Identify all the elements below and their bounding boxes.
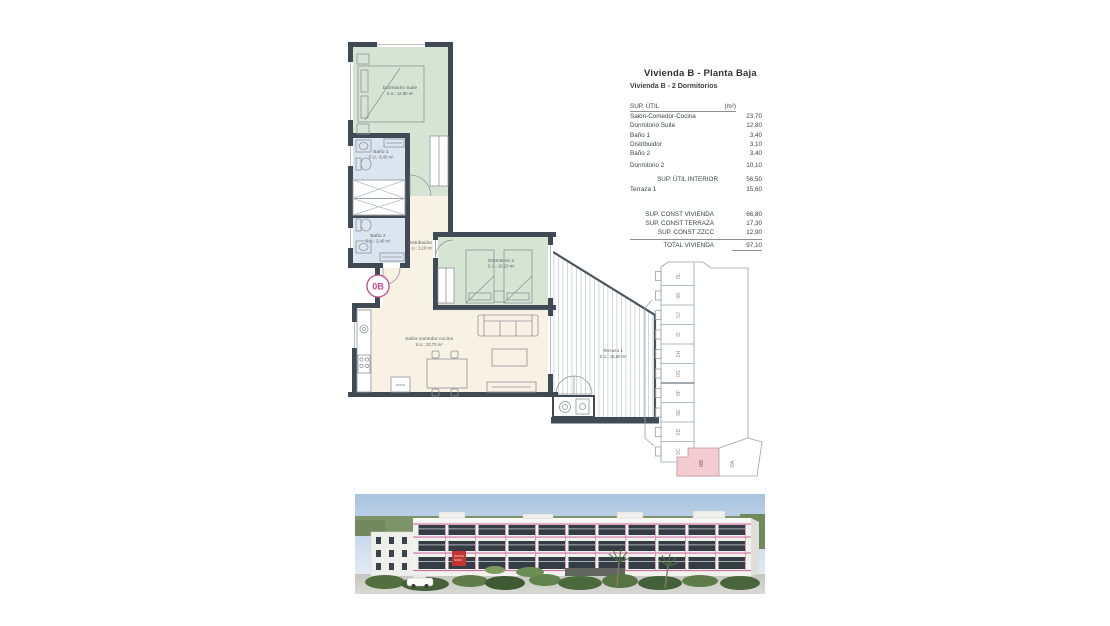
page-subtitle: Vivienda B - 2 Dormitorios (630, 83, 762, 90)
svg-text:0H: 0H (676, 350, 682, 357)
highlighted-unit (677, 448, 719, 476)
context-outline (645, 300, 654, 446)
row-label: Terraza 1 (630, 185, 656, 194)
row-label: SUP. ÚTIL INTERIOR (630, 175, 718, 184)
fridge-label: FRIGO (396, 383, 406, 387)
svg-text:0E: 0E (676, 409, 682, 416)
terraza-row: Terraza 1 15,60 (630, 185, 762, 194)
table-row: Dormitorio Suite 12,80 (630, 121, 762, 130)
bano1-area: S.U.: 3,40 m² (369, 155, 394, 160)
row-label: SUP. CONST VIVIENDA (630, 210, 714, 219)
unit-dividers (661, 286, 694, 442)
summary-row: SUP. CONST VIVIENDA 66,80 (630, 210, 762, 219)
row-label: Dormitorio 2 (630, 161, 664, 170)
red-sign (452, 551, 466, 566)
row-value: 3,10 (732, 140, 762, 149)
terraza-area: S.U.: 15,60 m² (600, 354, 628, 359)
table-row: Distribuidor 3,10 (630, 140, 762, 149)
row-label: SUP. CONST ZZCC (630, 228, 714, 237)
svg-text:0I: 0I (676, 332, 682, 336)
table-row: Baño 1 3,40 (630, 131, 762, 140)
interior-subtotal-row: SUP. ÚTIL INTERIOR 56,50 (630, 175, 762, 184)
salon-area: S.U.: 23,70 m² (416, 342, 444, 347)
table-row: Baño 2 3,40 (630, 149, 762, 158)
suite-area: S.U.: 12,80 m² (387, 91, 415, 96)
col-label: SUP. ÚTIL (630, 103, 659, 110)
row-value: 3,40 (732, 131, 762, 140)
bottom-line (719, 438, 748, 448)
row-value: 56,50 (732, 175, 762, 184)
construction-summary: SUP. CONST VIVIENDA 66,80 SUP. CONST TER… (630, 210, 762, 251)
col-unit: (m²) (724, 103, 736, 110)
svg-text:0J: 0J (676, 312, 682, 318)
unit-labels: 0L 0K 0J 0I 0H 0G 0F 0E 0D 0C 0B 0A (676, 273, 736, 468)
total-row: TOTAL VIVIENDA 97,10 (630, 239, 762, 251)
svg-text:0D: 0D (676, 428, 682, 435)
svg-text:0K: 0K (676, 292, 682, 299)
distribuidor-area: S.U.: 3,10 m² (408, 246, 433, 251)
bano2-area: S.U.: 3,40 m² (366, 239, 391, 244)
floorplan-drawing: FRIGO Dormitorio Suite S.U.: 12,80 m² Ba… (330, 30, 670, 450)
row-label: Distribuidor (630, 140, 662, 149)
row-label: SUP. CONST TERRAZA (630, 219, 714, 228)
row-label: Baño 2 (630, 149, 650, 158)
adjacent-unit-label: 0A (730, 460, 736, 467)
svg-text:0C: 0C (676, 448, 682, 455)
dorm2-area: S.U.: 10,10 m² (488, 264, 516, 269)
table-header: SUP. ÚTIL (m²) (630, 103, 736, 112)
area-table: Vivienda B - Planta Baja Vivienda B - 2 … (630, 64, 762, 251)
row-label: Salón-Comedor-Cocina (630, 112, 696, 121)
summary-row: SUP. CONST ZZCC 12,90 (630, 228, 762, 237)
row-value: 15,60 (732, 185, 762, 194)
table-row: Salón-Comedor-Cocina 23,70 (630, 112, 762, 121)
row-value: 17,30 (732, 219, 762, 228)
highlight-unit-label: 0B (699, 460, 705, 467)
svg-text:0G: 0G (676, 370, 682, 377)
svg-text:0F: 0F (676, 390, 682, 396)
row-value: 12,90 (732, 228, 762, 237)
svg-text:0L: 0L (676, 273, 682, 279)
room-salon (357, 305, 548, 392)
row-value: 23,70 (732, 112, 762, 121)
row-value: 10,10 (732, 161, 762, 170)
kitchen-counter (357, 310, 371, 392)
apartment-building (371, 511, 759, 576)
room-dormitorio-2 (438, 237, 548, 305)
row-value: 97,10 (732, 241, 762, 251)
row-label: Baño 1 (630, 131, 650, 140)
keyplan-locator: 0L 0K 0J 0I 0H 0G 0F 0E 0D 0C 0B 0A (638, 258, 770, 483)
table-row: Dormitorio 2 10,10 (630, 161, 762, 170)
unit-badge: 0B (367, 275, 389, 297)
unit-badge-label: 0B (372, 282, 384, 292)
summary-row: SUP. CONST TERRAZA 17,30 (630, 219, 762, 228)
row-value: 66,80 (732, 210, 762, 219)
balcony-notches (656, 272, 662, 457)
row-label: TOTAL VIVIENDA (630, 241, 714, 251)
brochure-page: FRIGO Dormitorio Suite S.U.: 12,80 m² Ba… (0, 0, 1110, 626)
row-label: Dormitorio Suite (630, 121, 675, 130)
building-render (355, 494, 765, 594)
row-value: 12,80 (732, 121, 762, 130)
page-title: Vivienda B - Planta Baja (644, 68, 762, 79)
row-value: 3,40 (732, 149, 762, 158)
